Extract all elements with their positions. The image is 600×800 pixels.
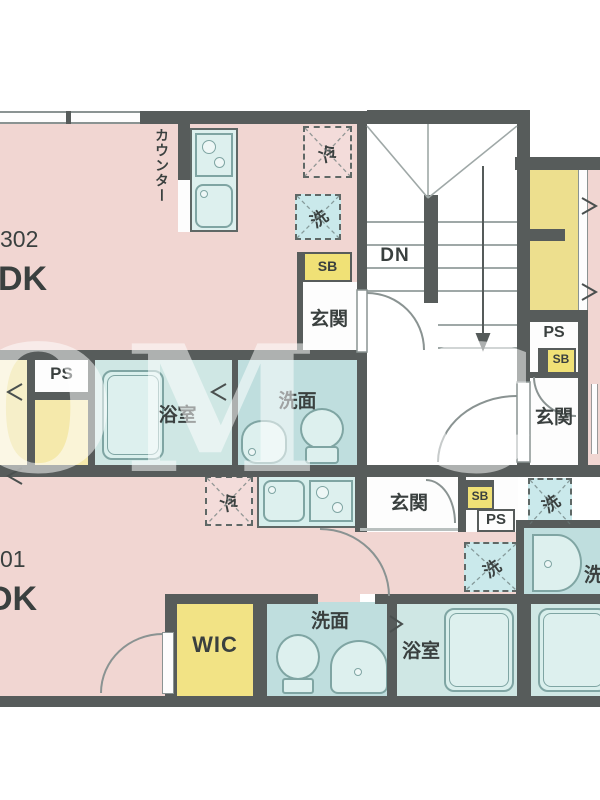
genkan-301-label: 玄関	[378, 488, 440, 515]
washroom-east-label: 洗	[584, 560, 600, 587]
closet-east-track	[578, 170, 588, 310]
ps-east-label: PS	[530, 324, 578, 342]
stove-302	[195, 133, 233, 177]
floorplan: カウンター 冷 洗 SB 玄関 302 DK PS 浴室 洗面 DN	[0, 0, 600, 800]
window-east	[591, 384, 598, 454]
fridge-301: 冷	[205, 476, 253, 526]
basin-east	[532, 534, 582, 592]
counter-label: カウンター	[150, 128, 172, 230]
fridge-301-label: 冷	[198, 470, 260, 533]
toilet-302	[300, 408, 344, 450]
washroom-302-label: 洗面	[255, 386, 340, 413]
ps-302-shaft	[35, 400, 88, 466]
genkan-east-label: 玄関	[526, 402, 582, 429]
washer-302-label: 洗	[289, 188, 347, 246]
stove-301	[309, 480, 353, 522]
shoebox-301-label: SB	[466, 489, 494, 503]
sink-washroom-301	[330, 640, 388, 694]
sink-washroom-302	[241, 420, 287, 464]
toilet-302-base	[305, 446, 339, 464]
fridge-302: 冷	[303, 126, 352, 178]
genkan-302-label: 玄関	[298, 304, 360, 331]
fridge-302-label: 冷	[295, 119, 359, 184]
washer-east: 洗	[528, 478, 572, 526]
toilet-301	[276, 634, 320, 680]
unit-302-plan: DK	[0, 260, 47, 299]
washer-302: 洗	[295, 194, 341, 240]
unit-301-plan: DK	[0, 580, 37, 619]
stair-treads-lower	[438, 303, 517, 349]
door-leaf-301-room	[162, 632, 174, 694]
washroom-301-label: 洗面	[285, 606, 375, 633]
unit-301-number: 01	[0, 546, 26, 573]
unit-302-number: 302	[0, 226, 38, 253]
counter-passthrough	[178, 180, 190, 232]
shoebox-302-label: SB	[303, 258, 352, 274]
wic-301-label: WIC	[177, 632, 253, 658]
closet-302-left	[0, 360, 27, 466]
bathroom-301-label: 浴室	[396, 636, 446, 663]
washer-301: 洗	[464, 542, 518, 592]
toilet-301-base	[282, 678, 314, 694]
shoebox-east-label: SB	[546, 352, 576, 366]
ps-302-label: PS	[35, 364, 88, 384]
bathroom-302-label: 浴室	[130, 400, 225, 427]
washer-301-label: 洗	[457, 534, 524, 600]
stairs-dn-label: DN	[372, 245, 418, 267]
ps-301-label: PS	[477, 511, 515, 528]
